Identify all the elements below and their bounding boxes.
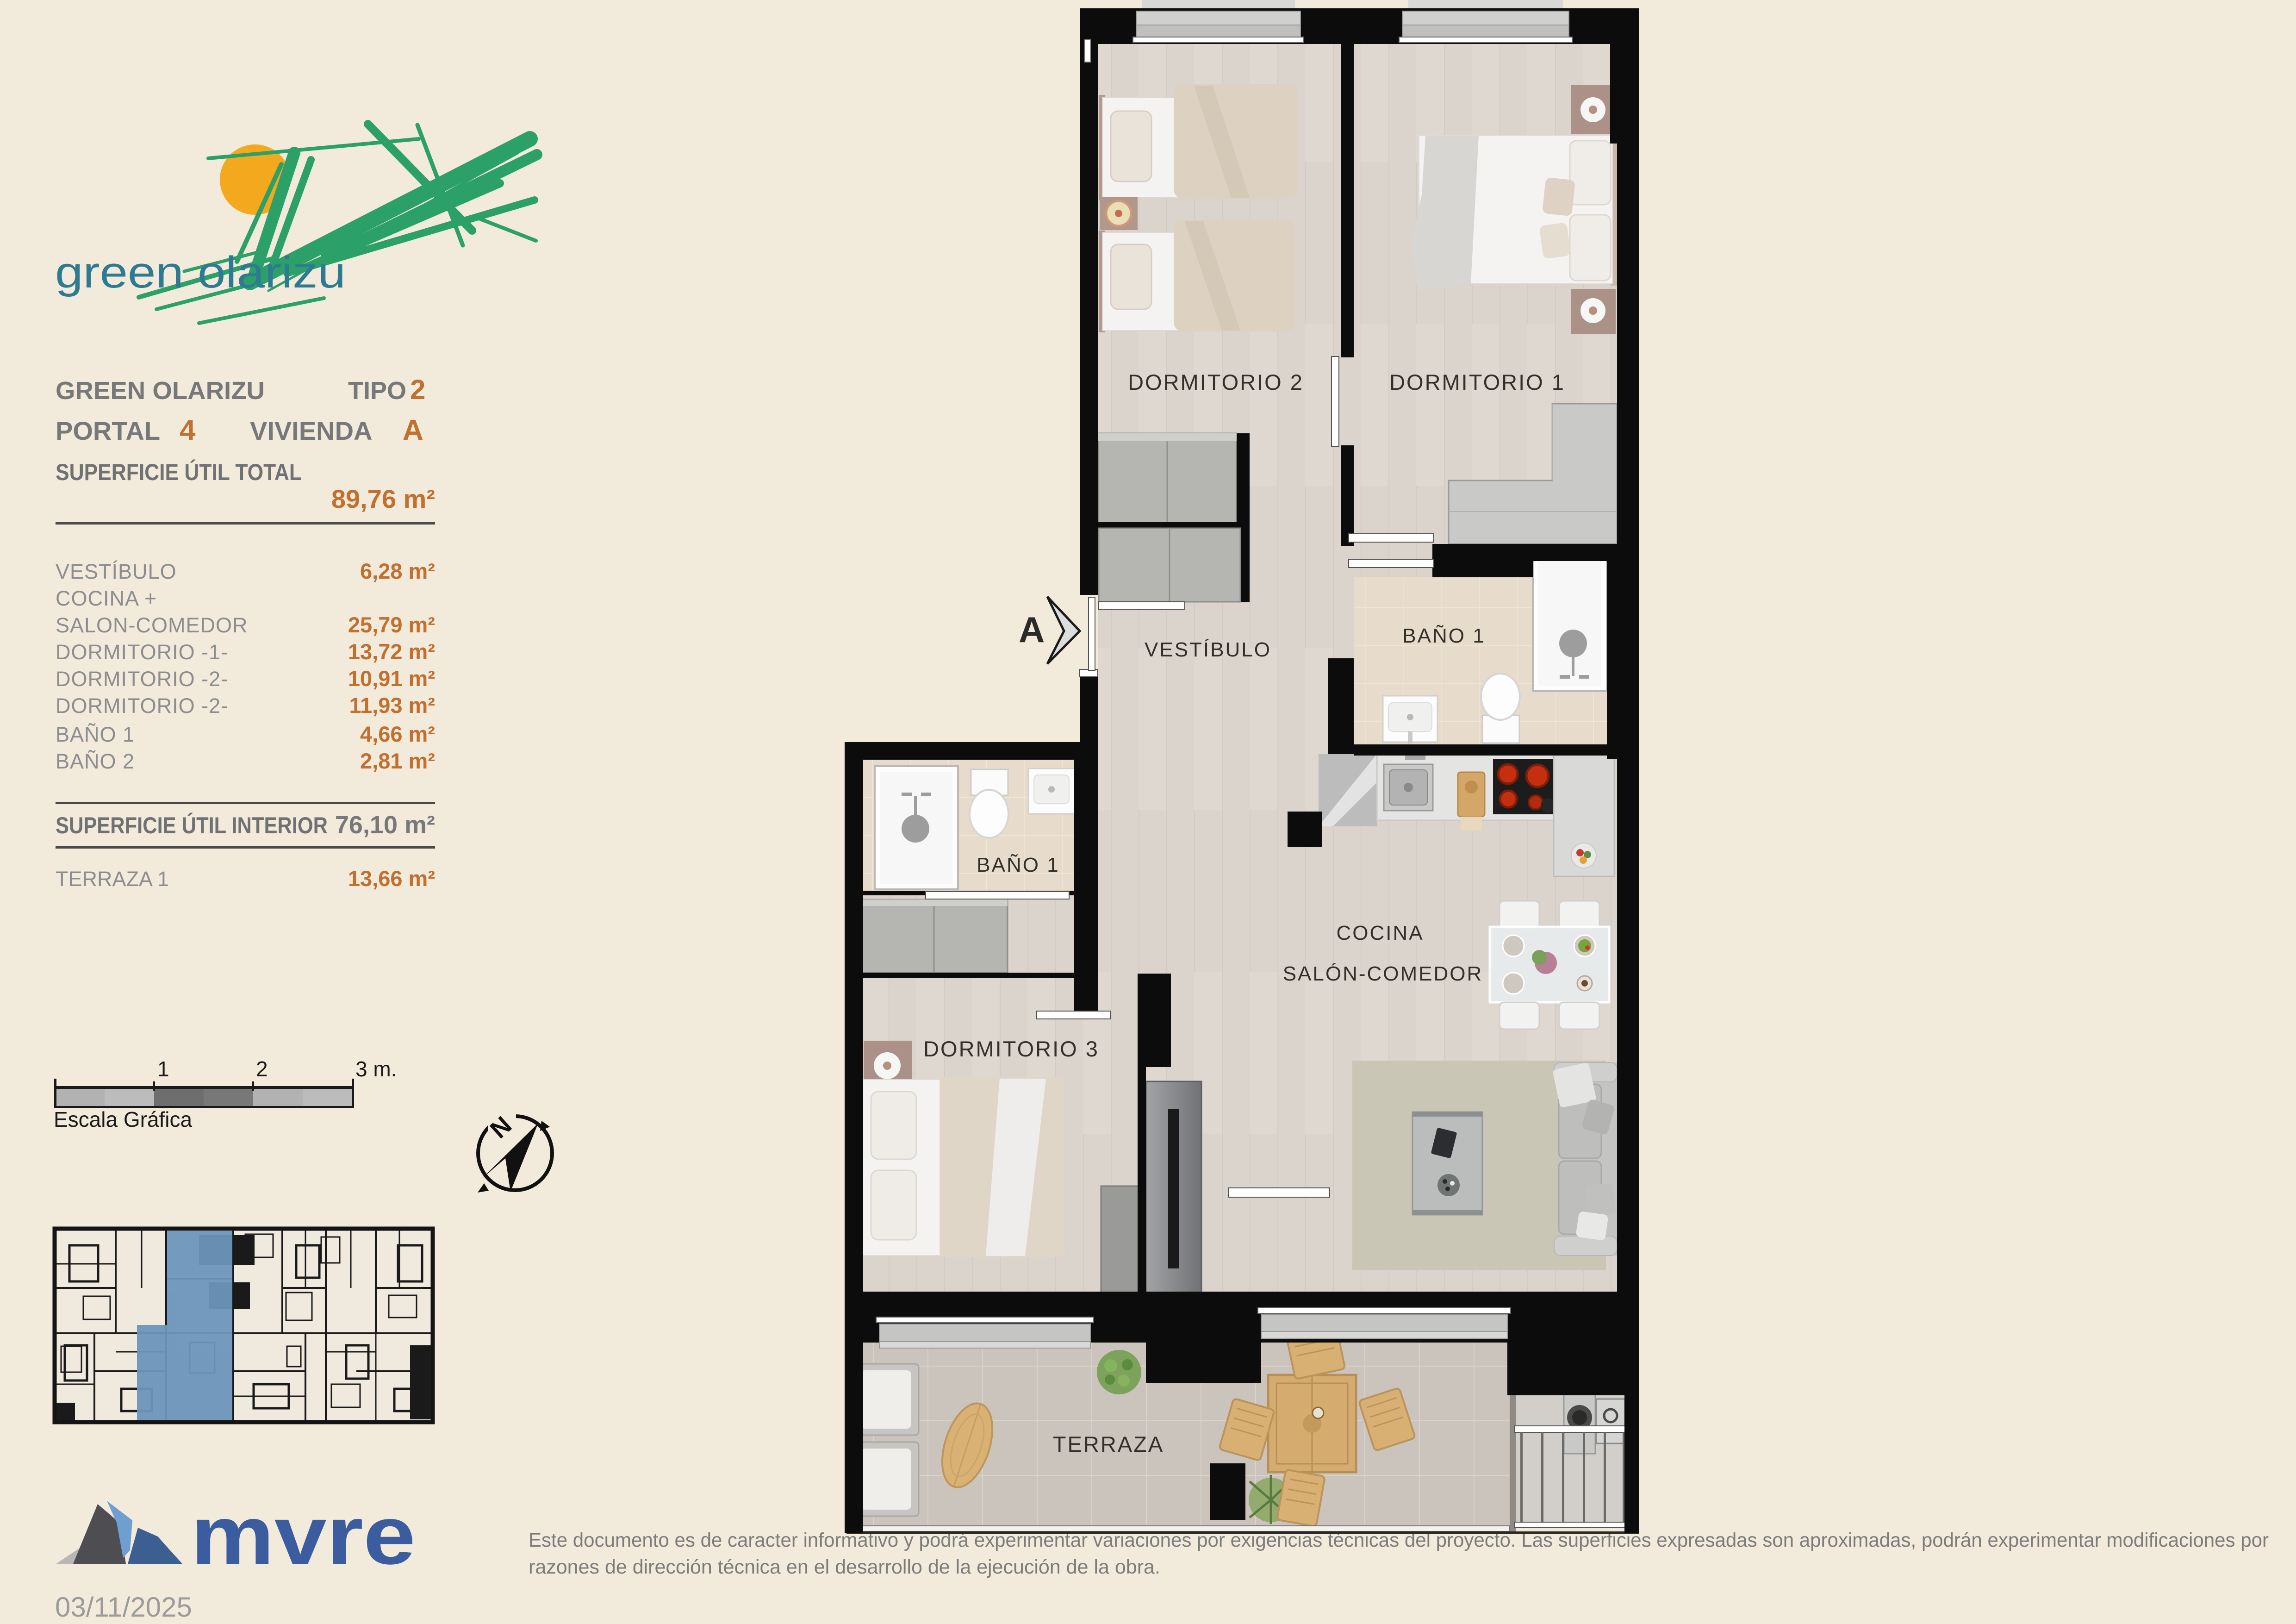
svg-text:89,76 m²: 89,76 m² [331,484,435,513]
svg-text:COCINA +: COCINA + [56,587,157,610]
svg-text:2: 2 [256,1057,268,1081]
svg-text:VIVIENDA: VIVIENDA [250,416,373,445]
svg-text:2,81 m²: 2,81 m² [360,749,435,773]
svg-text:VESTÍBULO: VESTÍBULO [1145,638,1271,661]
svg-text:SALÓN-COMEDOR: SALÓN-COMEDOR [1283,962,1483,985]
svg-text:DORMITORIO -2-: DORMITORIO -2- [56,667,228,691]
svg-text:3 m.: 3 m. [355,1057,397,1081]
svg-text:PORTAL: PORTAL [56,416,160,445]
svg-text:TERRAZA 1: TERRAZA 1 [56,867,169,891]
svg-text:DORMITORIO 3: DORMITORIO 3 [923,1037,1099,1061]
svg-text:Escala Gráfica: Escala Gráfica [54,1107,193,1131]
svg-text:A: A [1019,609,1045,650]
svg-text:DORMITORIO -2-: DORMITORIO -2- [56,694,228,718]
svg-text:mvre: mvre [191,1489,416,1582]
svg-text:SUPERFICIE ÚTIL TOTAL: SUPERFICIE ÚTIL TOTAL [56,459,302,485]
svg-text:13,72 m²: 13,72 m² [348,639,435,664]
svg-text:DORMITORIO -1-: DORMITORIO -1- [56,640,228,664]
svg-text:SALON-COMEDOR: SALON-COMEDOR [56,613,248,637]
svg-text:4,66 m²: 4,66 m² [360,722,435,746]
svg-text:BAÑO 2: BAÑO 2 [56,750,135,773]
svg-text:25,79 m²: 25,79 m² [348,612,435,637]
svg-text:4: 4 [180,414,196,446]
svg-text:BAÑO 1: BAÑO 1 [56,723,135,746]
svg-text:GREEN OLARIZU: GREEN OLARIZU [56,377,265,405]
svg-text:6,28 m²: 6,28 m² [360,559,435,583]
svg-text:COCINA: COCINA [1336,922,1424,944]
svg-text:DORMITORIO 1: DORMITORIO 1 [1389,370,1565,394]
svg-text:TERRAZA: TERRAZA [1053,1432,1164,1456]
svg-text:03/11/2025: 03/11/2025 [55,1592,192,1623]
svg-text:2: 2 [410,374,425,405]
svg-text:A: A [403,414,423,446]
svg-text:BAÑO 1: BAÑO 1 [1402,624,1485,647]
svg-text:VESTÍBULO: VESTÍBULO [56,560,177,583]
svg-text:SUPERFICIE ÚTIL INTERIOR: SUPERFICIE ÚTIL INTERIOR [56,812,328,838]
svg-text:1: 1 [157,1057,169,1081]
svg-text:11,93 m²: 11,93 m² [349,693,435,718]
svg-text:13,66 m²: 13,66 m² [348,866,435,891]
svg-text:TIPO: TIPO [348,377,406,405]
svg-text:razones de dirección técnica e: razones de dirección técnica en el desar… [529,1556,1160,1578]
svg-text:76,10 m²: 76,10 m² [335,811,435,839]
svg-text:BAÑO 1: BAÑO 1 [977,853,1059,876]
svg-text:green olarizu: green olarizu [55,248,346,297]
svg-text:10,91 m²: 10,91 m² [348,666,435,691]
svg-text:DORMITORIO 2: DORMITORIO 2 [1128,370,1304,394]
